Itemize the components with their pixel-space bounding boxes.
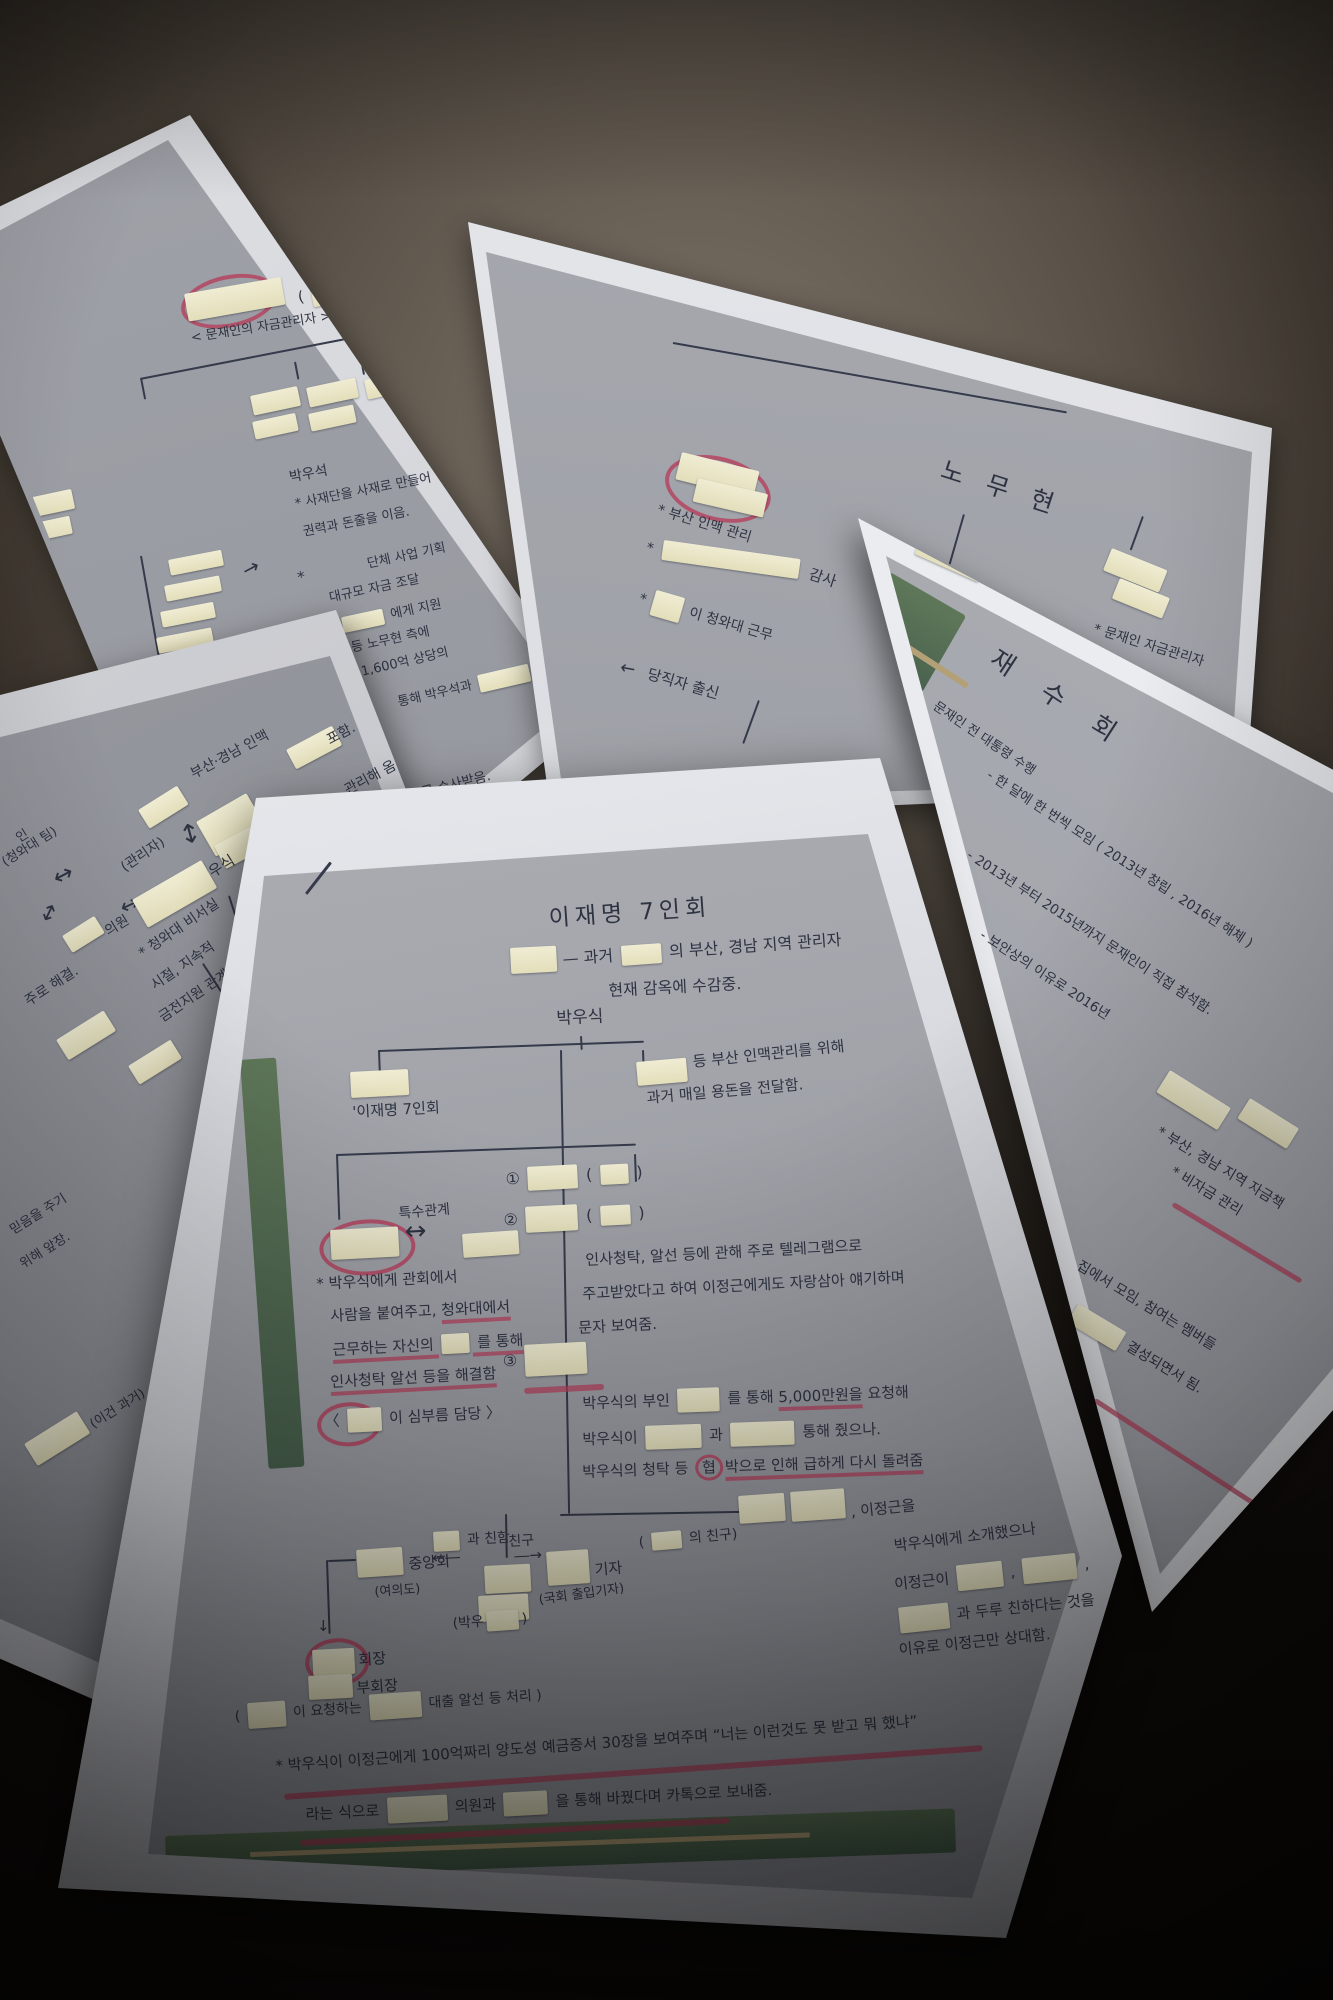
handwritten-text: 의원과 <box>450 1795 502 1816</box>
tape-redaction <box>368 1691 422 1721</box>
handwritten-text: 사람을 붙여주고, <box>330 1301 442 1325</box>
tape-redaction <box>1022 1553 1078 1585</box>
handwritten-line: 근무하는 자신의 를 통해 <box>332 1330 524 1360</box>
tape-redaction <box>312 1648 355 1676</box>
handwritten-line: 사람을 붙여주고, 청와대에서 <box>330 1299 511 1326</box>
tape-redaction <box>620 943 661 966</box>
arrow-icon: ―→ <box>514 1547 542 1566</box>
handwritten-text: 등 부산 인맥관리를 위해 <box>692 1038 845 1071</box>
handwritten-text: 을 통해 바꿨다며 카톡으로 보내줌. <box>550 1781 772 1811</box>
tape-redaction <box>651 1530 682 1551</box>
photo-scene: ( )< 문재인의 자금관리자 >박우석* 사재단을 사재로 만들어권력과 돈줄… <box>0 0 1333 2000</box>
handwritten-line: 박우식의 부인 를 통해 5,000만원을 요청해 <box>582 1381 909 1416</box>
red-underlined-text: 근무하는 자신의 <box>332 1335 439 1364</box>
handwritten-text: 의 부산, 경남 지역 관리자 <box>663 930 842 961</box>
handwritten-text: ) <box>633 1203 645 1223</box>
handwritten-text: 〈 <box>324 1411 345 1430</box>
tape-redaction <box>350 1069 409 1098</box>
handwritten-text: 라는 식으로 <box>305 1801 384 1823</box>
handwritten-text: 박우식이 <box>582 1428 643 1448</box>
tape-redaction <box>486 1609 519 1631</box>
pen-mark <box>305 861 332 894</box>
handwritten-line: ( 의 친구) <box>638 1525 738 1552</box>
diagram-line <box>328 1559 356 1562</box>
handwritten-text: '이재명 7인회 <box>352 1099 440 1121</box>
handwritten-text: 박우식의 청탁 등 <box>582 1459 693 1481</box>
handwritten-line: 박우식의 청탁 등 협박으로 인해 급하게 다시 돌려줌 <box>582 1452 924 1481</box>
handwritten-text: 통해 줬으나. <box>797 1420 881 1441</box>
handwritten-text: ② <box>503 1209 523 1229</box>
handwritten-text: ( <box>234 1708 245 1725</box>
handwritten-text: 요청해 <box>862 1383 909 1403</box>
tape-redaction <box>790 1488 846 1522</box>
handwritten-line: 인사청탁 알선 등을 해결함 <box>330 1365 497 1391</box>
tape-redaction <box>330 1226 399 1260</box>
handwritten-text: 중앙회 <box>408 1553 451 1573</box>
handwritten-text: 문자 보여줌. <box>578 1316 657 1337</box>
tape-redaction <box>356 1547 404 1578</box>
handwritten-text: 과 <box>704 1425 728 1444</box>
handwritten-text: ( <box>638 1534 649 1551</box>
handwritten-text: ( <box>580 1206 597 1226</box>
diagram-line <box>560 1510 765 1516</box>
handwritten-text: 이 요청하는 <box>288 1700 367 1721</box>
handwritten-text: (박우 <box>452 1614 484 1632</box>
tape-redaction <box>636 1058 688 1086</box>
handwritten-line: (박우) <box>452 1609 528 1634</box>
document-sheet-lee-jae-myung-7: 이재명 7인회— 과거 의 부산, 경남 지역 관리자현재 감옥에 수감중.박우… <box>0 0 1333 2000</box>
tape-redaction <box>546 1549 590 1586</box>
handwritten-text: , 이정근을 <box>850 1497 916 1521</box>
diagram-line <box>378 1041 644 1052</box>
handwritten-text: 인사청탁, 알선 등에 관해 주로 텔레그램으로 <box>585 1238 863 1270</box>
handwritten-text: , <box>1005 1562 1021 1581</box>
handwritten-text: 박우식에게 소개했으나 <box>893 1521 1037 1556</box>
handwritten-line: — 과거 의 부산, 경남 지역 관리자 <box>562 931 842 970</box>
tape-redaction <box>645 1424 702 1450</box>
handwritten-text: ) <box>631 1162 643 1182</box>
red-underlined-text: 를 통해 <box>472 1330 524 1356</box>
tape-redaction <box>503 1790 548 1816</box>
handwritten-line: ② ( ) <box>503 1201 645 1234</box>
tape-redaction <box>386 1795 447 1824</box>
handwritten-line: 박우식이 과 통해 줬으나. <box>582 1418 881 1452</box>
handwritten-line: ① ( ) <box>505 1161 643 1192</box>
tape-redaction <box>524 1342 588 1377</box>
handwritten-text: — 과거 <box>562 946 619 969</box>
tape-redaction <box>738 1493 786 1524</box>
handwritten-text: 의 친구) <box>684 1526 738 1547</box>
arrow-icon: ↓ <box>317 1618 330 1635</box>
tape-redaction <box>600 1164 629 1185</box>
handwritten-text: ① <box>505 1168 525 1188</box>
handwritten-text: (국회 출입기자) <box>538 1582 625 1609</box>
doc-title: 이재명 7인회 <box>548 895 712 933</box>
tape-redaction <box>898 1602 950 1633</box>
tape-redaction <box>441 1333 470 1354</box>
red-underlined-text: 박으로 인해 급하게 다시 돌려줌 <box>725 1451 924 1481</box>
handwritten-text: 박우식의 부인 <box>582 1391 675 1412</box>
handwritten-text: (여의도) <box>374 1583 421 1601</box>
handwritten-text: ) <box>521 1611 528 1627</box>
red-circled-text: 협 <box>695 1454 724 1481</box>
handwritten-text: ( <box>580 1165 597 1185</box>
handwritten-text: 를 통해 <box>722 1388 778 1408</box>
handwritten-text: 주고받았다고 하여 이정근에게도 자랑삼아 얘기하며 <box>582 1269 905 1303</box>
diagram-line <box>336 1154 340 1220</box>
tape-redaction <box>527 1164 578 1191</box>
handwritten-text: , <box>1079 1555 1090 1574</box>
handwritten-text: 이정근이 <box>893 1569 955 1593</box>
handwritten-text: 과 두루 친하다는 것을 <box>951 1591 1095 1624</box>
red-underlined-text: 인사청탁 알선 등을 해결함 <box>330 1364 497 1396</box>
handwritten-text: 박우식 <box>556 1008 604 1030</box>
handwritten-text: * 박우식에게 관회에서 <box>316 1269 458 1294</box>
handwritten-text: 회장 <box>358 1650 387 1669</box>
diagram-line <box>505 1514 508 1558</box>
tape-redaction <box>730 1421 795 1447</box>
handwritten-text: * 박우식이 이정근에게 100억짜리 양도성 예금증서 30장을 보여주며 “… <box>275 1713 918 1775</box>
handwritten-text: 과 친함 <box>462 1530 510 1548</box>
handwritten-text: 이 심부름 담당 〉 <box>384 1403 502 1427</box>
diagram-line <box>560 1050 570 1514</box>
red-underlined-text: 청와대에서 <box>441 1298 511 1325</box>
tape-redaction <box>525 1204 578 1233</box>
diagram-line <box>336 1144 636 1156</box>
tape-redaction <box>600 1204 631 1226</box>
tape-redaction <box>347 1407 382 1433</box>
tape-redaction <box>247 1700 287 1729</box>
double-arrow-icon: ↔ <box>404 1217 427 1248</box>
tape-redaction <box>677 1387 720 1412</box>
red-underlined-text: 5,000만원을 <box>778 1385 863 1411</box>
handwritten-text: 기자 <box>594 1560 623 1580</box>
tape-redaction <box>462 1230 520 1258</box>
tape-redaction <box>510 946 557 974</box>
handwritten-text: 대출 알선 등 처리 ) <box>424 1688 543 1712</box>
tape-redaction <box>956 1561 1004 1592</box>
handwritten-text: 현재 감옥에 수감중. <box>608 975 742 1000</box>
tape-redaction <box>484 1564 531 1594</box>
